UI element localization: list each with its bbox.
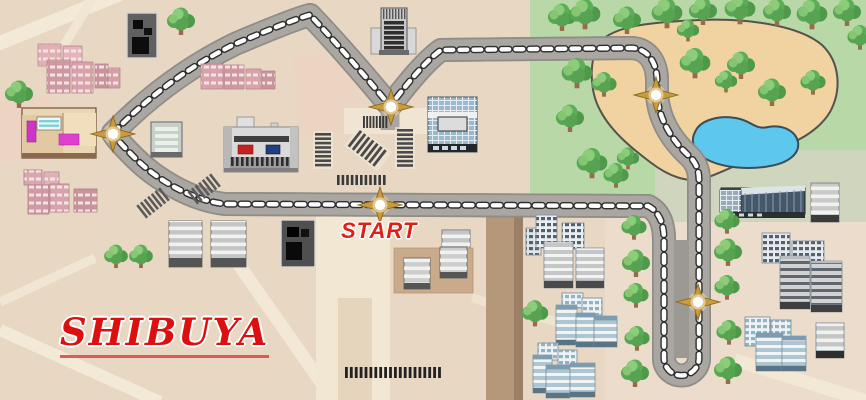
building bbox=[281, 220, 315, 267]
building bbox=[127, 13, 157, 58]
region-title: SHIBUYA bbox=[60, 310, 269, 358]
building bbox=[428, 97, 477, 152]
start-label: START bbox=[341, 218, 417, 244]
shibuya-course-map: START SHIBUYA bbox=[0, 0, 866, 400]
building bbox=[811, 183, 839, 222]
building bbox=[151, 122, 182, 157]
crosswalk-stripes-icon bbox=[395, 127, 415, 169]
crosswalk-stripes-icon bbox=[313, 131, 333, 169]
building bbox=[394, 247, 473, 293]
building bbox=[22, 108, 96, 158]
